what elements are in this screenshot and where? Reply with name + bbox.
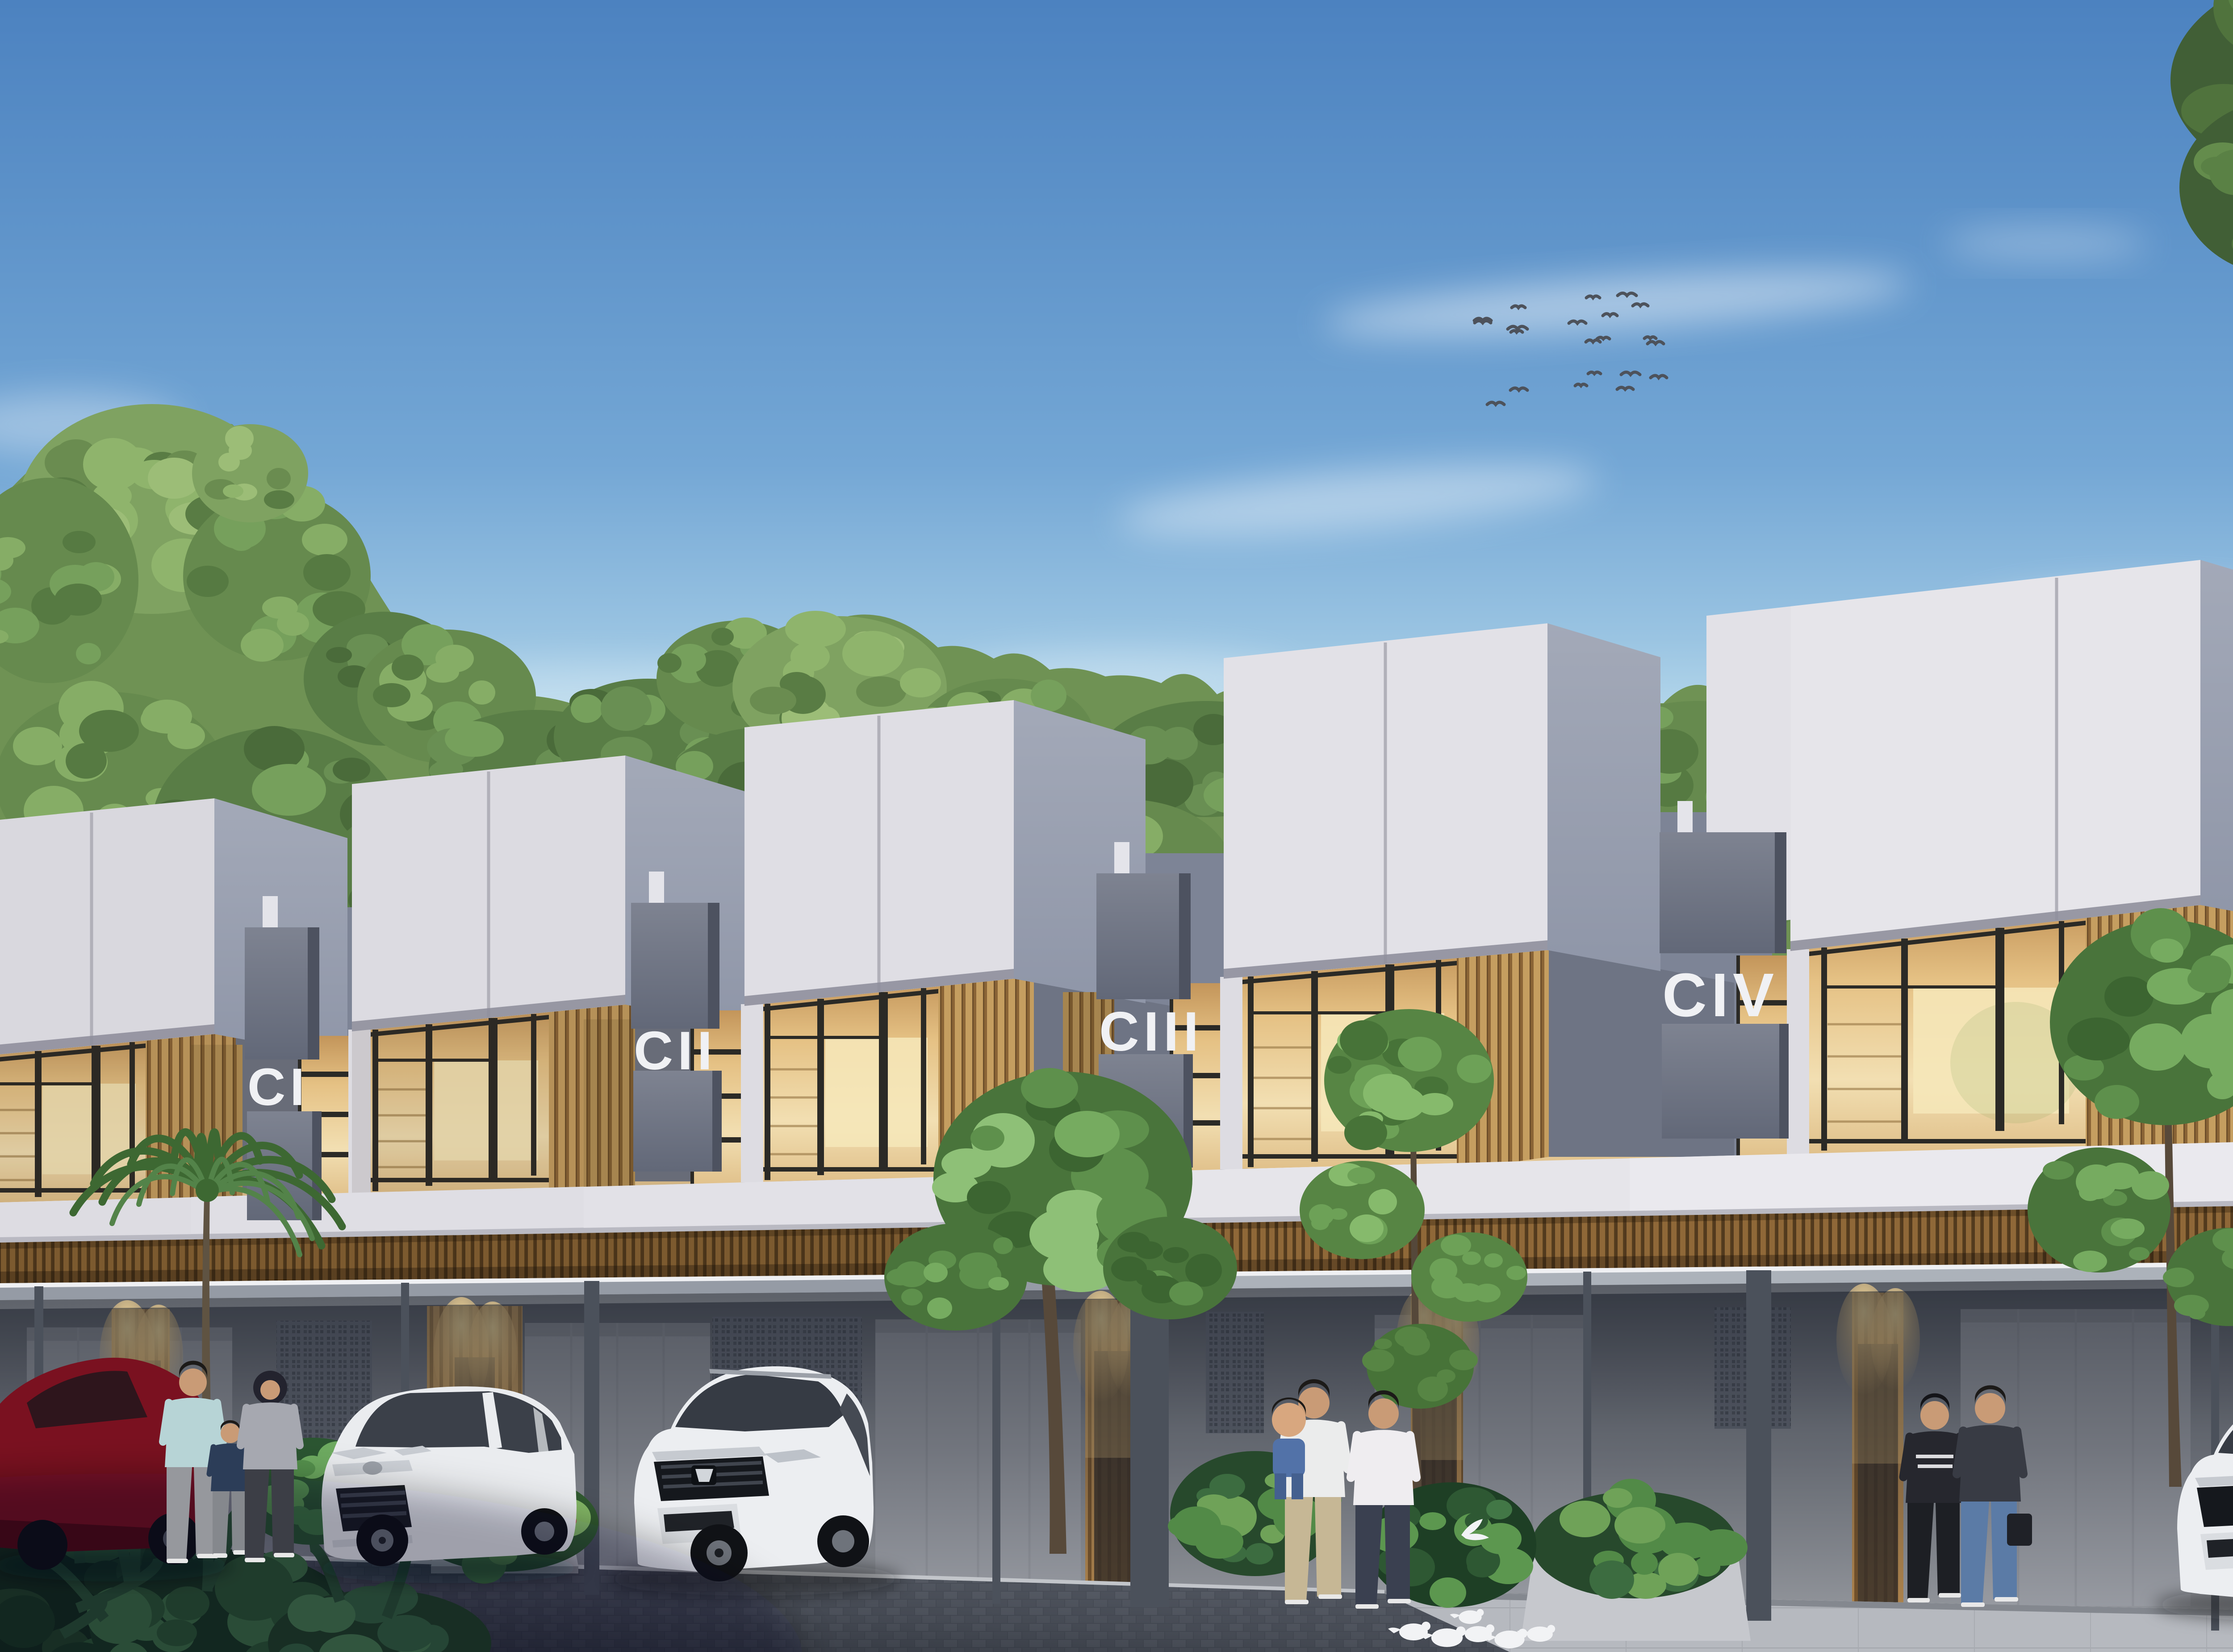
svg-text:CII: CII bbox=[634, 1020, 717, 1081]
svg-text:CI: CI bbox=[247, 1058, 309, 1117]
svg-text:CIV: CIV bbox=[1662, 961, 1778, 1030]
svg-text:CIII: CIII bbox=[1099, 1001, 1203, 1063]
